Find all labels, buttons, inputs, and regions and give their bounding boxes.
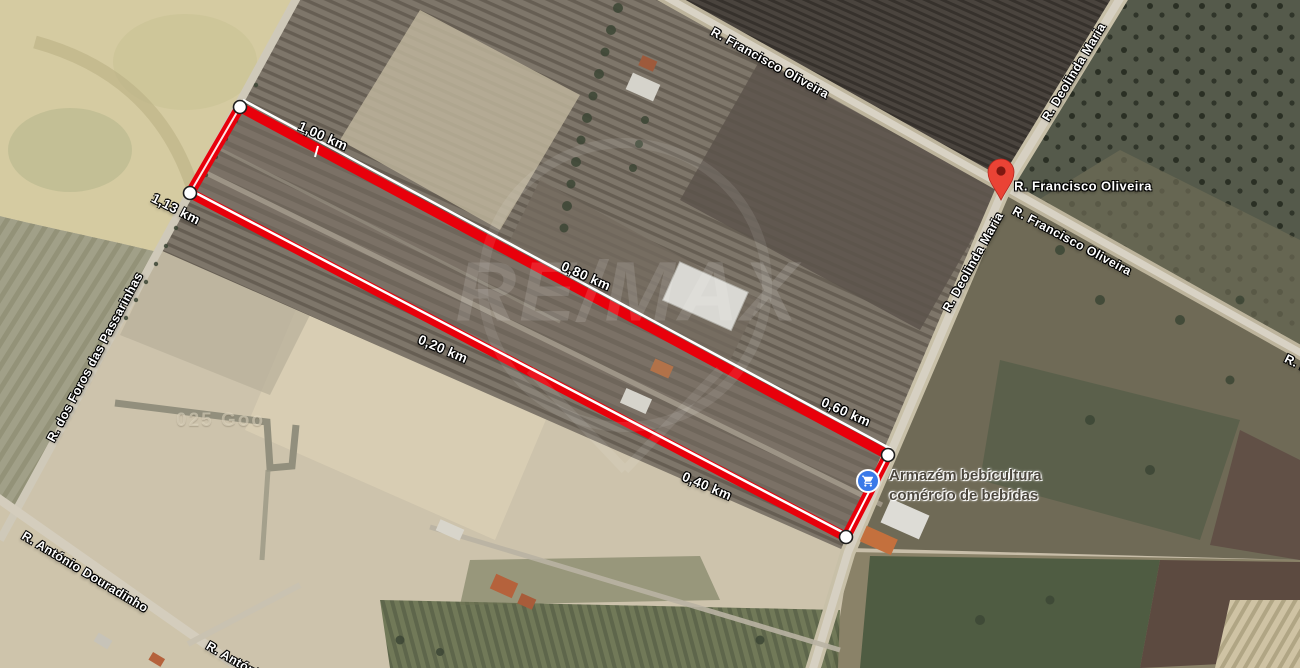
poi-marker[interactable] <box>857 470 879 492</box>
poi-label-line2[interactable]: comércio de bebidas <box>889 486 1042 506</box>
measure-vertex-dot[interactable] <box>840 531 853 544</box>
measure-vertex-dot[interactable] <box>184 187 197 200</box>
pin-inner-dot <box>996 166 1005 175</box>
measure-vertex-dot[interactable] <box>882 449 895 462</box>
satellite-imagery <box>0 0 1300 668</box>
satellite-map-canvas[interactable]: RE/MAX 025 Goo R. Francisco Oliveira R. … <box>0 0 1300 668</box>
poi-label-armazem[interactable]: Armazém bebicultura comércio de bebidas <box>889 466 1042 506</box>
measure-vertex-dot[interactable] <box>234 101 247 114</box>
street-label-francisco-pin: R. Francisco Oliveira <box>1014 179 1152 194</box>
poi-label-line1[interactable]: Armazém bebicultura <box>889 466 1042 486</box>
terrain-fields <box>0 0 1300 668</box>
